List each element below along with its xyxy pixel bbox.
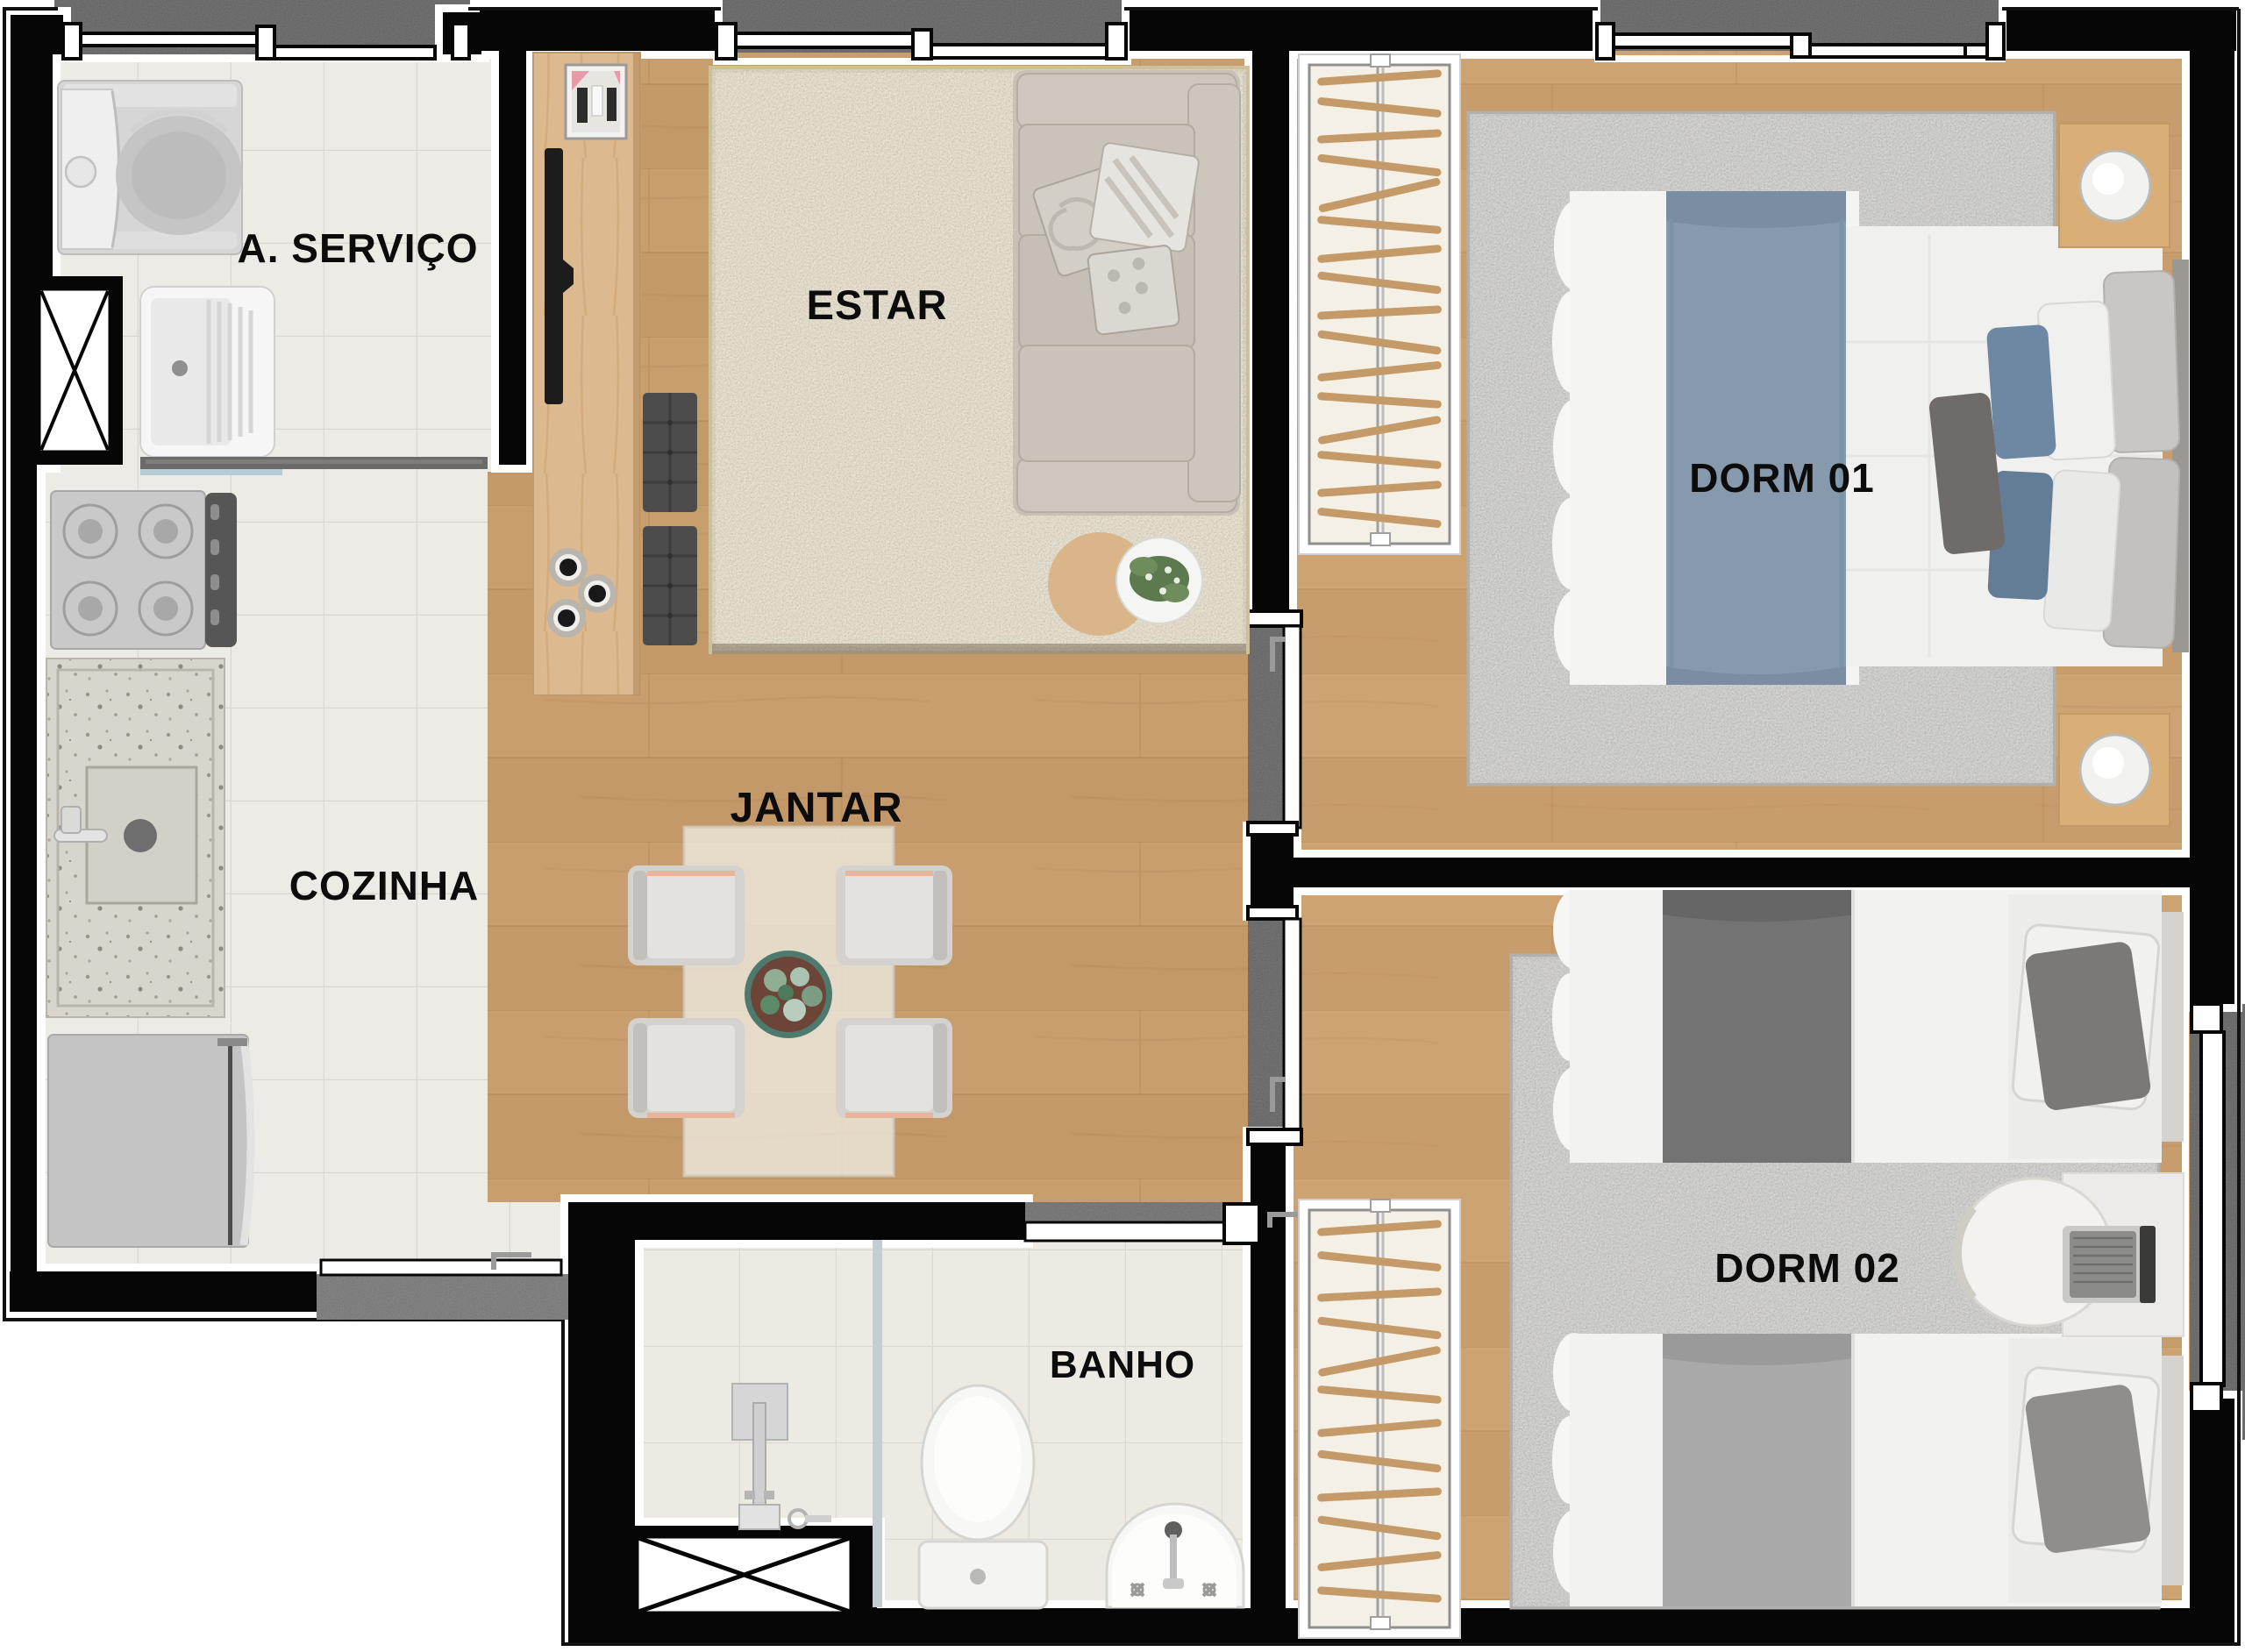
svg-text:BANHO: BANHO (1050, 1343, 1195, 1386)
svg-text:DORM 01: DORM 01 (1689, 455, 1874, 501)
svg-text:COZINHA: COZINHA (289, 863, 480, 908)
svg-text:DORM 02: DORM 02 (1714, 1245, 1899, 1291)
svg-text:A. SERVIÇO: A. SERVIÇO (238, 225, 479, 271)
svg-text:ESTAR: ESTAR (807, 281, 948, 328)
svg-text:JANTAR: JANTAR (730, 785, 902, 831)
